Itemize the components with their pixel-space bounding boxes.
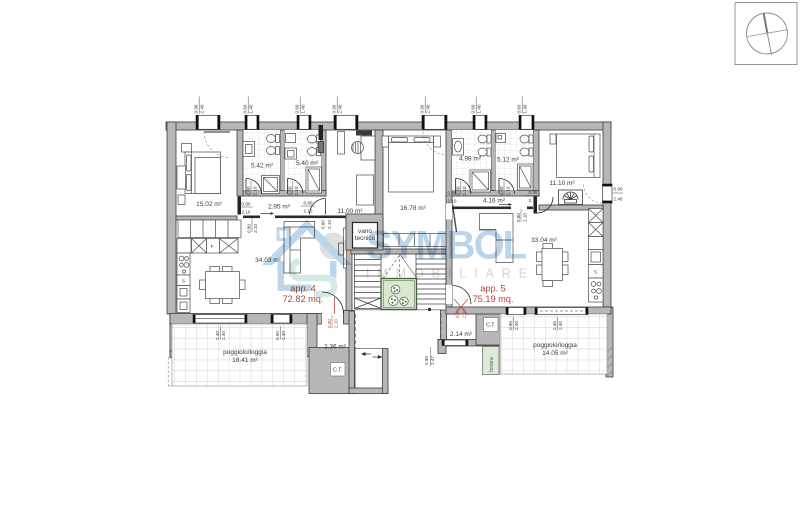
svg-text:1.40: 1.40 [477,104,482,113]
svg-text:2.40: 2.40 [338,104,343,113]
svg-text:2.14 m²: 2.14 m² [450,331,473,338]
svg-text:0.80: 0.80 [304,201,313,206]
svg-text:0.90: 0.90 [424,356,429,365]
svg-text:2.10: 2.10 [462,186,467,195]
svg-text:0.80: 0.80 [456,186,461,195]
svg-text:2.40: 2.40 [614,197,623,202]
svg-text:2.10: 2.10 [253,224,258,233]
svg-text:0.90: 0.90 [332,104,337,113]
svg-text:33.04 m²: 33.04 m² [531,237,557,244]
svg-text:0.60: 0.60 [517,104,522,113]
svg-text:0.90: 0.90 [194,104,199,113]
svg-text:2.40: 2.40 [221,331,226,340]
svg-text:S: S [594,270,597,275]
svg-text:2.40: 2.40 [281,331,286,340]
svg-text:S: S [182,279,185,284]
svg-text:5.40 m²: 5.40 m² [296,160,319,167]
svg-text:5.42 m²: 5.42 m² [251,163,274,170]
svg-text:poggiolo/loggia: poggiolo/loggia [223,349,267,356]
svg-text:2.10: 2.10 [334,319,339,328]
svg-text:0.90: 0.90 [614,187,623,192]
svg-text:2.40: 2.40 [200,104,205,113]
svg-text:2.10: 2.10 [529,198,538,203]
svg-text:SYMBOL: SYMBOL [366,224,527,268]
svg-text:11.10 m²: 11.10 m² [549,180,575,187]
svg-text:2.10: 2.10 [304,209,313,214]
svg-text:2.10: 2.10 [506,186,511,195]
svg-text:16.78 m²: 16.78 m² [400,205,426,212]
svg-text:0.80: 0.80 [247,224,252,233]
svg-text:2.10: 2.10 [523,213,528,222]
svg-text:15.02 m²: 15.02 m² [196,201,222,208]
svg-text:5.12 m²: 5.12 m² [497,157,520,164]
svg-text:2.40: 2.40 [552,321,557,330]
svg-text:0.80: 0.80 [321,220,326,229]
svg-text:foriera: foriera [489,357,495,372]
svg-text:0.90: 0.90 [508,321,513,330]
svg-text:F: F [211,244,214,249]
svg-text:C.T.: C.T. [333,368,342,374]
svg-text:0.80: 0.80 [529,190,538,195]
svg-text:1.40: 1.40 [301,104,306,113]
svg-text:4.16 m²: 4.16 m² [483,198,506,205]
svg-text:0.80: 0.80 [499,186,504,195]
svg-text:IMMOBILIARE: IMMOBILIARE [366,267,535,281]
svg-text:75.19 mq.: 75.19 mq. [473,294,514,304]
svg-text:1.40: 1.40 [249,104,254,113]
svg-text:2.40: 2.40 [215,331,220,340]
svg-text:2.10: 2.10 [253,186,258,195]
svg-text:0.80: 0.80 [246,186,251,195]
svg-text:C.T.: C.T. [486,323,495,329]
svg-text:4.98 m²: 4.98 m² [459,156,482,163]
svg-text:0.90: 0.90 [420,104,425,113]
svg-text:0.60: 0.60 [243,104,248,113]
svg-text:2.10: 2.10 [462,309,467,318]
svg-text:0.80: 0.80 [516,213,521,222]
svg-text:0.80: 0.80 [242,202,251,207]
svg-text:2.10: 2.10 [448,199,457,204]
svg-text:0.80: 0.80 [327,319,332,328]
svg-text:2.10: 2.10 [294,186,299,195]
svg-text:0.60: 0.60 [471,104,476,113]
svg-text:14.05 m²: 14.05 m² [542,350,568,357]
svg-text:2.40: 2.40 [558,321,563,330]
svg-text:2.10: 2.10 [242,210,251,215]
svg-text:poggiolo/loggia: poggiolo/loggia [533,342,577,349]
svg-text:0.60: 0.60 [295,104,300,113]
svg-text:1.40: 1.40 [523,104,528,113]
svg-text:0.90: 0.90 [275,331,280,340]
svg-text:2.36 m²: 2.36 m² [324,344,347,351]
svg-text:0.80: 0.80 [288,186,293,195]
svg-text:0.80: 0.80 [455,309,460,318]
svg-text:2.10: 2.10 [327,220,332,229]
svg-text:2.95 m²: 2.95 m² [268,204,291,211]
svg-text:18.41 m²: 18.41 m² [232,357,258,364]
svg-text:2.40: 2.40 [426,104,431,113]
svg-text:app. 5: app. 5 [480,284,506,294]
svg-text:2.40: 2.40 [514,321,519,330]
